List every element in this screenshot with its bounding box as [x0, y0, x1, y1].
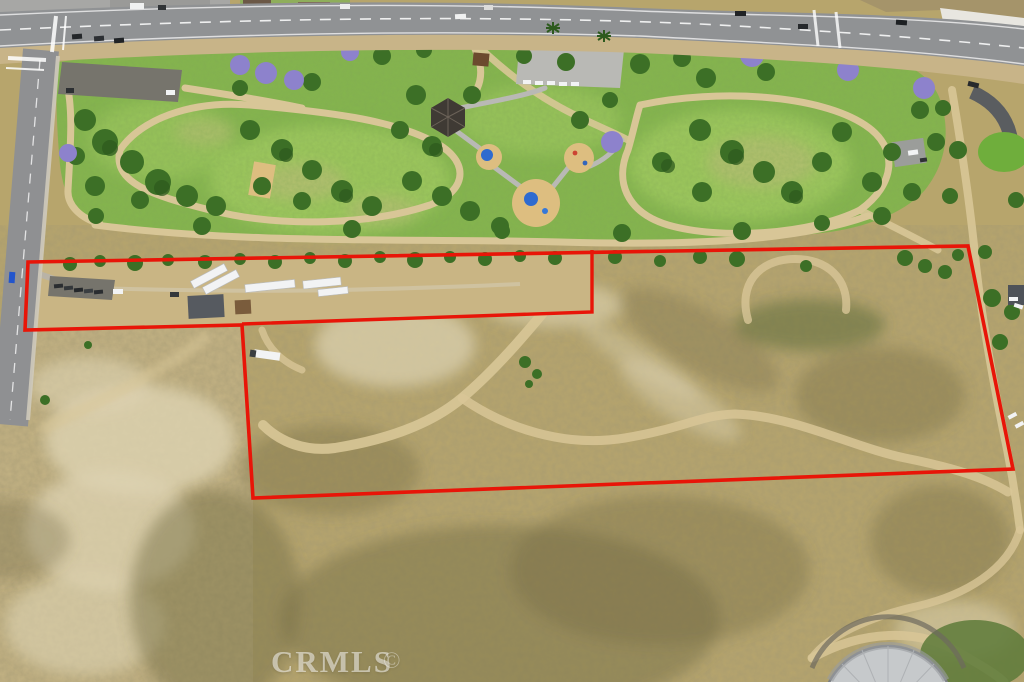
mls-watermark: CRMLS ©	[271, 644, 393, 680]
watermark-text: CRMLS	[271, 644, 393, 679]
aerial-photo: CRMLS ©	[0, 0, 1024, 682]
public-park	[57, 33, 946, 250]
aerial-scene	[0, 0, 1024, 682]
blue-car	[9, 272, 16, 283]
watermark-copyright-icon: ©	[383, 648, 400, 674]
restroom-building	[472, 52, 489, 66]
yard-building	[187, 294, 224, 319]
yard-shed	[235, 300, 252, 315]
neighbor-building	[1008, 285, 1024, 305]
